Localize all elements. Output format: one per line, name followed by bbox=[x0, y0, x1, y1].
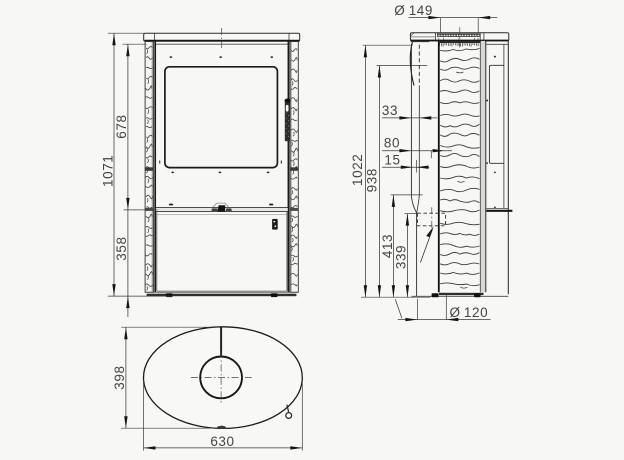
svg-text:1071: 1071 bbox=[100, 155, 115, 187]
svg-text:678: 678 bbox=[114, 114, 129, 138]
svg-text:358: 358 bbox=[114, 236, 129, 260]
svg-text:339: 339 bbox=[394, 245, 409, 269]
svg-text:1022: 1022 bbox=[350, 154, 365, 186]
svg-text:33: 33 bbox=[382, 103, 398, 118]
svg-text:80: 80 bbox=[384, 136, 400, 151]
svg-text:630: 630 bbox=[210, 434, 234, 449]
svg-text:15: 15 bbox=[384, 152, 400, 167]
svg-text:938: 938 bbox=[365, 168, 380, 192]
svg-text:398: 398 bbox=[112, 365, 127, 389]
svg-text:Ø 120: Ø 120 bbox=[450, 305, 489, 320]
svg-text:Ø 149: Ø 149 bbox=[394, 3, 433, 18]
